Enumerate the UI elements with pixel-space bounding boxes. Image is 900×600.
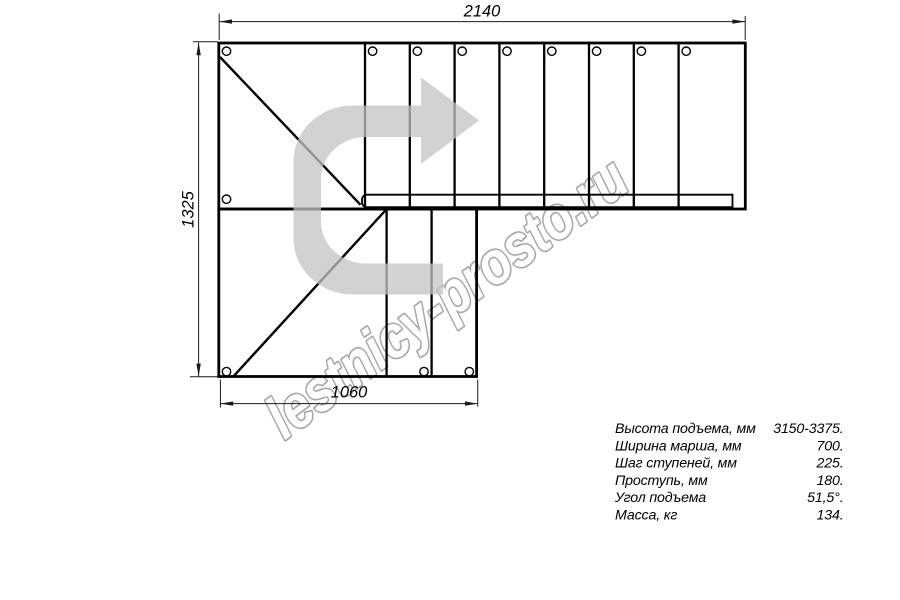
svg-text:134.: 134.: [816, 507, 843, 523]
svg-text:1325: 1325: [180, 190, 198, 228]
svg-text:3150-3375.: 3150-3375.: [773, 421, 843, 437]
svg-text:Шаг ступеней, мм: Шаг ступеней, мм: [615, 456, 737, 472]
svg-text:Высота подъема, мм: Высота подъема, мм: [615, 421, 756, 437]
svg-text:700.: 700.: [816, 438, 843, 454]
svg-text:Масса, кг: Масса, кг: [615, 507, 677, 523]
svg-text:Проступь, мм: Проступь, мм: [615, 473, 708, 489]
svg-text:2140: 2140: [463, 3, 502, 21]
svg-text:1060: 1060: [331, 384, 369, 402]
svg-text:51,5°.: 51,5°.: [807, 490, 843, 506]
svg-text:180.: 180.: [816, 473, 843, 489]
svg-text:Угол подъема: Угол подъема: [614, 490, 706, 506]
svg-text:225.: 225.: [815, 456, 843, 472]
svg-text:Ширина марша, мм: Ширина марша, мм: [615, 438, 742, 454]
